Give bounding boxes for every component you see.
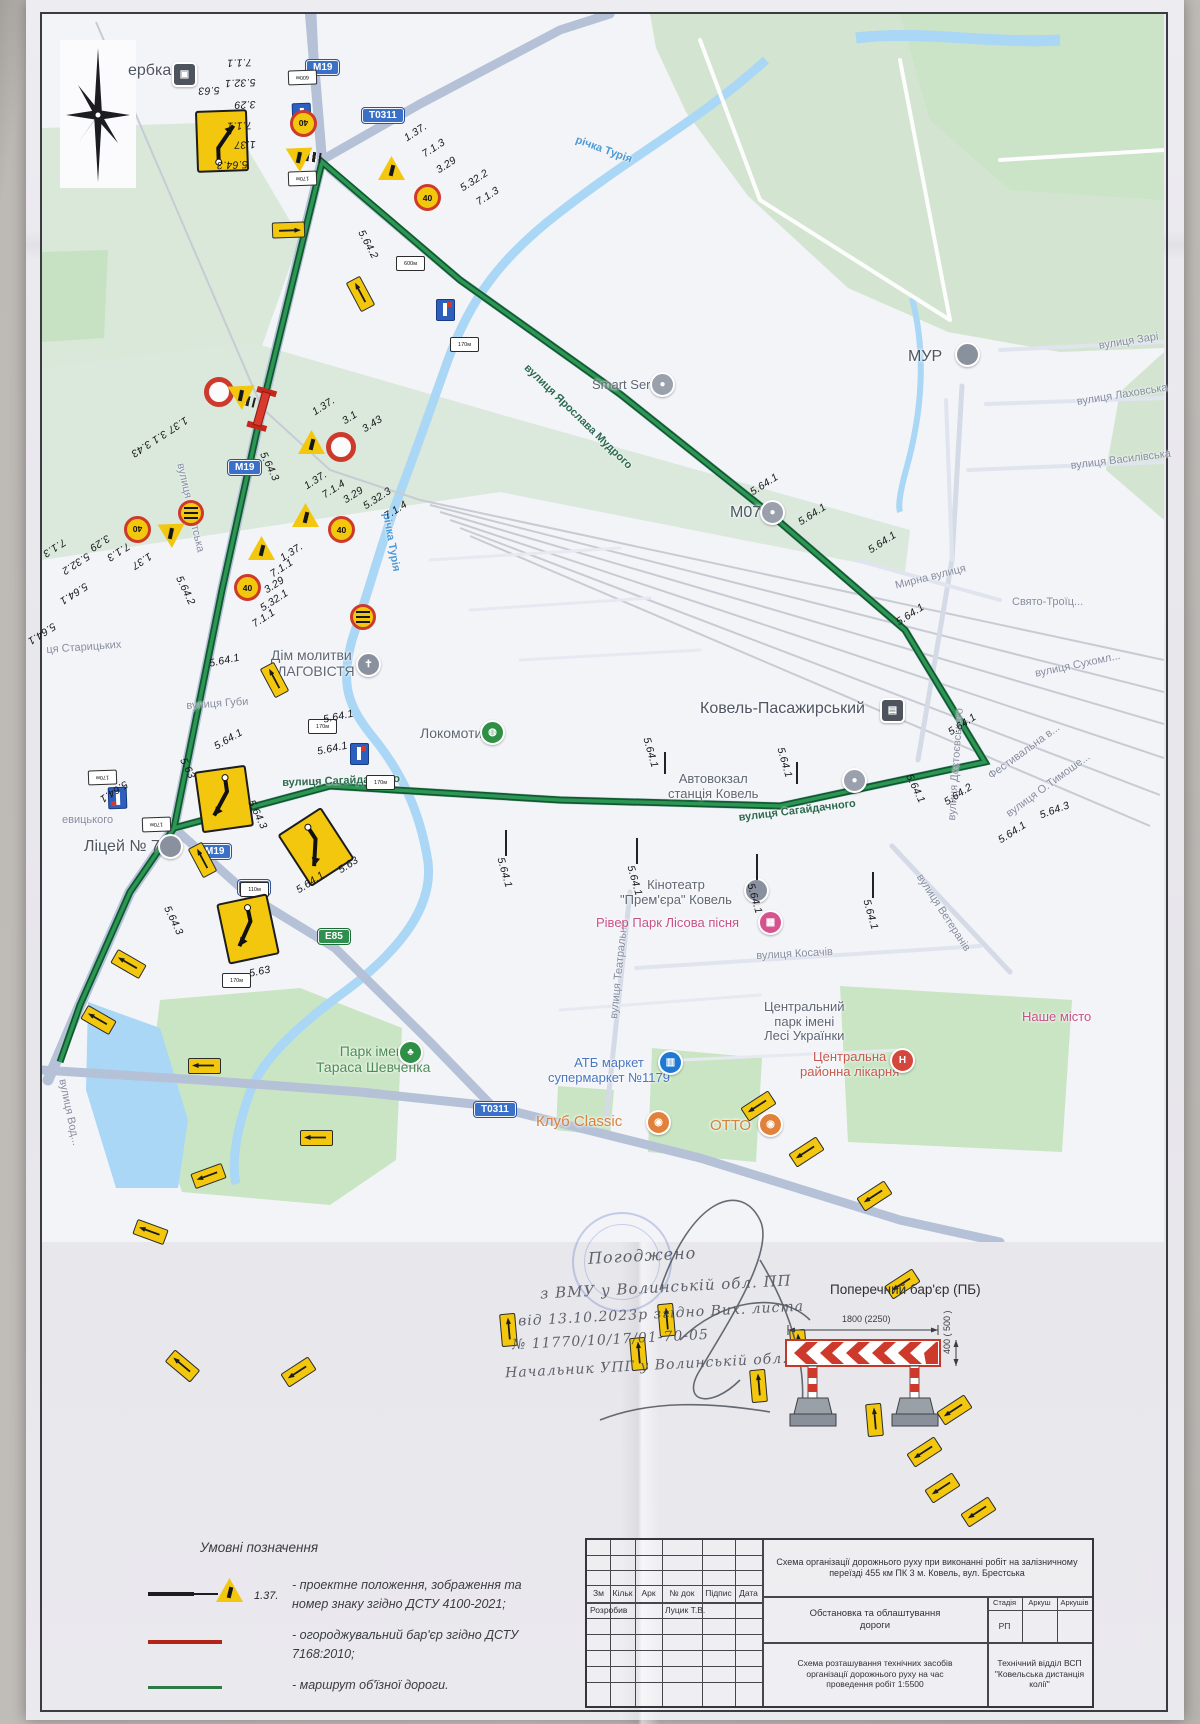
- restaurant-pin-icon: ◉: [758, 1112, 783, 1137]
- tb-stage-header: Стадія: [987, 1596, 1022, 1610]
- road-shield: М19: [228, 460, 261, 475]
- road-shield: Т0311: [362, 108, 404, 123]
- detour-plate-icon: [280, 1356, 316, 1387]
- sign-label: 5.64.1: [640, 736, 660, 769]
- sign-label: 1.37.: [310, 394, 337, 418]
- speed-limit-sign-icon: 40: [234, 574, 261, 601]
- park-pin-icon: ▦: [758, 910, 783, 935]
- sign-label: 1.37: [234, 138, 256, 151]
- legend-item-text: - проектне положення, зображення та номе…: [292, 1576, 522, 1614]
- sign-label: 5.64.1: [774, 746, 794, 779]
- school-pin-icon: [158, 834, 183, 859]
- river-label: річка Турія: [574, 134, 634, 166]
- sign-label: 1.37.: [402, 120, 429, 144]
- sign-label: 5.64.3: [217, 158, 248, 171]
- detour-plate-icon: [165, 1349, 201, 1382]
- distance-plate-icon: 600м: [288, 69, 318, 85]
- title-block: Зм Кільк Арк № док Підпис Дата Розробив …: [585, 1538, 1094, 1708]
- roadworks-sign-icon: [298, 430, 325, 454]
- detour-plate-icon: [80, 1005, 117, 1035]
- plate-distance-text: 110м: [248, 887, 261, 893]
- sign-label: 5.64.2: [355, 228, 380, 261]
- distance-plate-icon: 170м: [88, 769, 118, 785]
- sign-label: 7.1.3: [41, 536, 68, 560]
- sign-label: 3.1: [340, 409, 360, 428]
- detour-scheme-sign-icon: [216, 893, 280, 964]
- sign-post: [756, 854, 758, 880]
- road-shield: Т0311: [474, 1102, 516, 1117]
- sign-label: 5.64.1: [57, 580, 90, 607]
- speed-value: 40: [423, 193, 432, 203]
- place-label: Центральна районна лікарня: [800, 1050, 899, 1079]
- blue-sign-icon: [436, 299, 455, 321]
- street-label: вулиця Театральна: [608, 920, 630, 1019]
- place-label: Рівер Парк Лісова пісня: [596, 916, 739, 931]
- sign-label: 5.64.2: [173, 574, 197, 607]
- street-label: вулиця Василівська: [1070, 448, 1172, 472]
- distance-plate-icon: 600м: [396, 256, 425, 271]
- road-shield: Е85: [318, 929, 350, 944]
- roadworks-sign-icon: [248, 536, 275, 560]
- street-label: вулиця Косачів: [756, 946, 833, 962]
- tb-sheets-header: Аркушів: [1057, 1596, 1092, 1610]
- tb-developer-name: Луцик Т.В.: [662, 1602, 738, 1618]
- sign-label: 5.63: [248, 964, 272, 980]
- distance-plate-icon: 170м: [288, 170, 318, 186]
- speed-value: 40: [133, 524, 143, 534]
- tb-col-header: Підпис: [702, 1585, 735, 1602]
- river-label: річка Турія: [380, 512, 402, 572]
- sign-label: 7.1.1: [250, 606, 277, 630]
- speed-limit-sign-icon: 40: [328, 516, 355, 543]
- sign-label: 5.64.1: [796, 501, 829, 528]
- legend-sign-leader: [148, 1592, 194, 1596]
- poi-circle-icon: ●: [760, 500, 785, 525]
- club-pin-icon: ◉: [646, 1110, 671, 1135]
- street-label: евицького: [62, 814, 113, 826]
- sign-label: 7.1.3: [474, 184, 501, 208]
- sign-post: [636, 838, 638, 864]
- place-label: Наше місто: [1022, 1010, 1091, 1025]
- street-label: вулиця Губи: [186, 696, 249, 712]
- street-label: Свято-Троїц...: [1012, 596, 1083, 608]
- tb-doc-title: Обстановка та облаштування дороги: [765, 1598, 985, 1642]
- sign-post: [796, 762, 798, 784]
- sign-label: 3.43: [360, 413, 385, 435]
- barrier-title: Поперечний бар'єр (ПБ): [830, 1282, 981, 1297]
- sign-label: 5.32.1: [225, 76, 256, 89]
- speed-limit-sign-icon: 40: [124, 516, 152, 544]
- train-station-icon: ▤: [880, 698, 905, 723]
- place-label: Клуб Classic: [536, 1114, 622, 1131]
- sign-label: 7.1.3: [420, 136, 447, 160]
- detour-plate-icon: [190, 1163, 226, 1189]
- street-label: Мирна вулиця: [894, 562, 967, 591]
- speed-limit-sign-icon: 40: [290, 110, 318, 138]
- distance-plate-icon: 170м: [450, 337, 479, 352]
- detour-plate-icon: [924, 1472, 960, 1503]
- place-label: Ковель-Пасажирський: [700, 700, 865, 718]
- sign-label: 5.64.1: [212, 727, 245, 753]
- sign-label: 5.64.1: [860, 898, 880, 931]
- poi-pin-icon: [955, 342, 980, 367]
- street-label: Фестивальна в...: [986, 722, 1062, 782]
- detour-plate-icon: [856, 1180, 892, 1211]
- stadium-icon: ◍: [480, 720, 505, 745]
- plate-distance-text: 170м: [296, 175, 309, 181]
- tb-organization: Технічний відділ ВСП "Ковельська дистанц…: [989, 1644, 1090, 1704]
- street-label: вулиця Сагайдачного: [738, 798, 856, 824]
- sign-post: [872, 872, 874, 898]
- tb-stage-value: РП: [987, 1610, 1022, 1642]
- street-label: вулиця Лаховська: [1076, 382, 1168, 408]
- sign-label: 3.29: [234, 98, 256, 111]
- detour-plate-icon: [300, 1130, 333, 1146]
- sign-label: 5.64.3: [1038, 799, 1071, 821]
- blue-sign-icon: [350, 743, 369, 765]
- sign-label: 1.37 3.1 3.43: [129, 414, 190, 460]
- plate-distance-text: 170м: [458, 342, 471, 348]
- detour-plate-icon: [346, 276, 376, 313]
- detour-plate-icon: [272, 221, 306, 238]
- street-label: ця Старицьких: [46, 639, 122, 656]
- detour-plate-icon: [188, 1058, 221, 1074]
- sign-label: 5.64.1: [208, 652, 241, 670]
- tree-pin-icon: ♣: [398, 1040, 423, 1065]
- place-label: Автовокзал станція Ковель: [668, 772, 758, 801]
- map-label-layer: М19 Т0311 М19 М19 Р15 Е85 Т0311 вулиця З…: [0, 0, 1200, 1724]
- sign-label: 5.64.1: [316, 740, 349, 758]
- plate-distance-text: 170м: [230, 978, 243, 984]
- sign-label: 5.64.1: [866, 529, 899, 556]
- legend-sign-leader: [192, 1593, 218, 1595]
- detour-plate-icon: [110, 949, 147, 979]
- distance-plate-icon: 170м: [142, 816, 172, 832]
- place-label: Ліцей № 7: [84, 838, 160, 856]
- tb-developer-label: Розробив: [587, 1602, 665, 1618]
- sign-label: 7.1.4: [382, 498, 409, 522]
- legend-title: Умовні позначення: [200, 1540, 318, 1555]
- detour-plate-icon: [960, 1496, 996, 1527]
- speed-limit-sign-icon: 40: [414, 184, 441, 211]
- tb-col-header: Кільк: [610, 1585, 635, 1602]
- legend-route-line: [148, 1686, 222, 1689]
- roadworks-sign-icon: [158, 524, 186, 549]
- sign-label: 7.1.1: [227, 56, 252, 69]
- legend-item-text: - огороджувальний бар'єр згідно ДСТУ 716…: [292, 1626, 518, 1664]
- sign-label: 5.64.1: [903, 772, 927, 805]
- plate-distance-text: 600м: [296, 74, 309, 80]
- no-entry-sign-icon: [326, 432, 356, 462]
- transit-icon: ▣: [172, 62, 197, 87]
- sign-post: [664, 752, 666, 774]
- detour-scheme-sign-icon: [194, 765, 254, 834]
- tb-col-header: Зм: [587, 1585, 610, 1602]
- compass-rose-icon: [60, 40, 136, 192]
- poi-circle-icon: ●: [650, 372, 675, 397]
- tb-project-title: Схема організації дорожнього руху при ви…: [765, 1542, 1089, 1594]
- speed-value: 40: [299, 118, 309, 128]
- church-icon: ✝: [356, 652, 381, 677]
- no-entry-sign-icon: [204, 377, 234, 407]
- sign-label: 5.64.1: [996, 819, 1029, 846]
- street-label: вулиця Вод...: [56, 1078, 82, 1147]
- plate-distance-text: 600м: [404, 261, 417, 267]
- street-label: вулиця Зарі: [1098, 331, 1159, 352]
- roadworks-sign-icon: [378, 156, 405, 180]
- hospital-pin-icon: H: [890, 1048, 915, 1073]
- legend-item-text: - маршрут об'їзної дороги.: [292, 1676, 449, 1695]
- supermarket-pin-icon: ▥: [658, 1050, 683, 1075]
- sign-label: 5.64.3: [161, 904, 185, 937]
- barrier-legs: [790, 1366, 938, 1426]
- detour-plate-icon: [132, 1219, 168, 1245]
- sign-label: 5.63: [198, 84, 220, 97]
- speed-value: 40: [243, 583, 252, 593]
- sign-label: 5.64.1: [748, 471, 781, 498]
- barrier-drawing: [760, 1322, 990, 1452]
- tb-scheme-title: Схема розташування технічних засобів орг…: [765, 1644, 985, 1704]
- legend-sign-code: 1.37.: [254, 1590, 278, 1602]
- plate-distance-text: 170м: [96, 774, 109, 780]
- sign-label: 3.29: [434, 154, 459, 176]
- tb-col-header: Арк: [635, 1585, 662, 1602]
- sign-label: 5.32.2: [59, 550, 92, 577]
- tb-sheet-header: Аркуш: [1022, 1596, 1057, 1610]
- distance-plate-icon: 170м: [366, 775, 395, 790]
- tb-col-header: Дата: [735, 1585, 762, 1602]
- sign-label: 7.1.1: [227, 119, 252, 132]
- place-label: ОТТО: [710, 1118, 751, 1135]
- roadworks-sign-icon: [292, 503, 319, 527]
- sign-label: 5.64.1: [322, 708, 355, 726]
- place-label: МУР: [908, 348, 942, 366]
- distance-plate-icon: 170м: [222, 973, 251, 988]
- bus-station-icon: ●: [842, 768, 867, 793]
- sign-label: 1.37: [129, 550, 154, 572]
- sign-label: 5.64.1: [894, 601, 927, 628]
- place-label: М07: [730, 504, 761, 522]
- speed-value: 40: [337, 525, 346, 535]
- restriction-sign-icon: [178, 500, 204, 526]
- place-label: АТБ маркет супермаркет №1179: [548, 1056, 670, 1085]
- tb-col-header: № док: [662, 1585, 702, 1602]
- barrier-figure: Поперечний бар'єр (ПБ) 1800 (2250) 400 (…: [760, 1282, 990, 1452]
- legend-barrier-line: [148, 1640, 222, 1644]
- scanned-traffic-scheme: М19 Т0311 М19 М19 Р15 Е85 Т0311 вулиця З…: [0, 0, 1200, 1724]
- plate-distance-text: 170м: [150, 821, 163, 827]
- sign-post: [505, 830, 507, 856]
- street-label: вулиця Сухомл...: [1034, 650, 1121, 680]
- sign-label: 5.64.1: [494, 856, 514, 889]
- place-label: Центральний парк імені Лесі Українки: [764, 1000, 845, 1044]
- street-label: вулиця Ветеранів: [914, 872, 973, 954]
- place-label: ербка: [128, 62, 171, 80]
- restriction-sign-icon: [350, 604, 376, 630]
- plate-distance-text: 170м: [374, 780, 387, 786]
